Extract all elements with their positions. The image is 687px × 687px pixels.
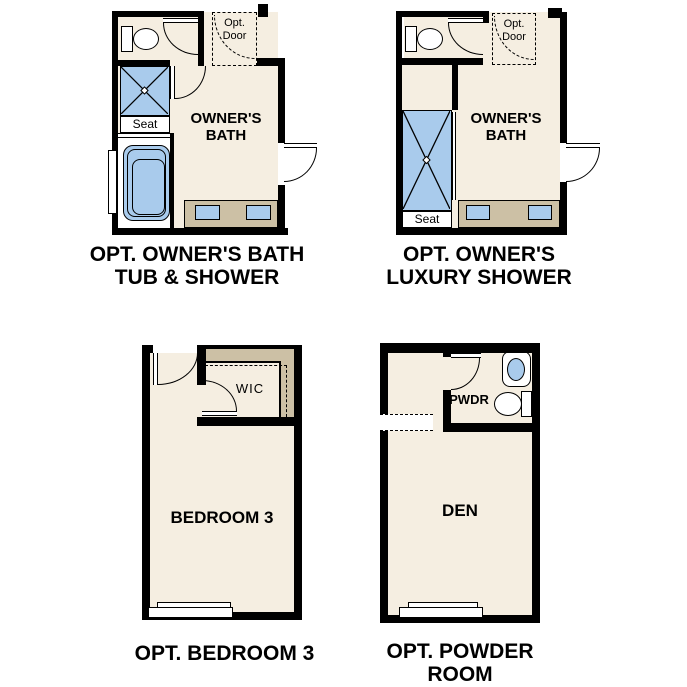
den-floor: [388, 431, 532, 615]
alcove-threshold-lines: [118, 133, 170, 138]
caption-text: OPT. BEDROOM 3: [135, 642, 315, 665]
wic-rod-dashed-line: [286, 365, 287, 417]
room-label-text: DEN: [442, 501, 478, 520]
window: [148, 607, 233, 618]
pwdr-label-text: PWDR: [449, 392, 489, 407]
bathtub-basin: [132, 159, 165, 215]
door-swing-arc: [284, 148, 317, 182]
toilet-bowl: [494, 392, 522, 416]
wall: [197, 417, 302, 426]
shower-x-lines: [121, 67, 168, 114]
door-swing-arc: [566, 148, 600, 182]
window: [108, 150, 117, 214]
caption-line2: LUXURY SHOWER: [376, 266, 582, 289]
plan-caption: OPT. OWNER'S LUXURY SHOWER: [376, 243, 582, 289]
opt-door-label-line2: Door: [212, 30, 257, 43]
wall: [142, 345, 153, 353]
caption-line1: OPT. OWNER'S: [376, 243, 582, 266]
wall: [112, 228, 288, 235]
wall: [278, 58, 285, 143]
shower-seat: Seat: [120, 116, 170, 133]
sink-basin: [246, 205, 271, 220]
wall: [483, 11, 489, 23]
wall: [398, 58, 483, 65]
wall: [112, 60, 170, 66]
opt-door-label: Opt. Door: [212, 17, 257, 43]
caption-line2: TUB & SHOWER: [64, 266, 330, 289]
wall: [443, 343, 451, 357]
toilet-tank: [521, 391, 532, 417]
room-label: BEDROOM 3: [142, 508, 302, 527]
opt-door-label-line2: Door: [492, 31, 536, 44]
wic-rod-dashed-line: [205, 365, 287, 366]
wic-shelf-right: [280, 349, 294, 417]
shower-x-lines: [403, 111, 450, 209]
opt-door-label-line1: Opt.: [212, 17, 257, 30]
caption-line2: ROOM: [357, 663, 563, 686]
caption-line1: OPT. OWNER'S BATH: [64, 243, 330, 266]
wall: [380, 431, 388, 623]
seat-label: Seat: [133, 117, 158, 131]
wall: [380, 343, 540, 353]
floorplan-options-sheet: Seat Opt. Door: [0, 0, 687, 687]
room-label-line2: BATH: [456, 127, 556, 144]
wall: [294, 345, 302, 620]
plan-caption: OPT. BEDROOM 3: [102, 642, 347, 665]
wic-label: WIC: [224, 381, 276, 396]
sink-basin: [466, 205, 490, 220]
shower-fixture: [120, 66, 170, 116]
room-label: DEN: [400, 501, 520, 520]
wall: [452, 65, 458, 110]
wall: [560, 12, 567, 143]
wall: [142, 345, 150, 620]
room-label-line1: OWNER'S: [176, 110, 276, 127]
room-label-text: BEDROOM 3: [171, 508, 274, 527]
wall: [532, 343, 540, 623]
wic-shelf-edge-line: [279, 361, 281, 417]
wall: [396, 11, 402, 235]
toilet-bowl: [133, 28, 159, 50]
wall: [396, 228, 567, 235]
room-label-line1: OWNER'S: [456, 110, 556, 127]
wic-door-leaf: [202, 411, 237, 416]
sink-basin: [195, 205, 220, 220]
opt-door-label-line1: Opt.: [492, 18, 536, 31]
plan-caption: OPT. POWDER ROOM: [357, 640, 563, 686]
window: [157, 602, 231, 608]
wall: [197, 345, 206, 385]
doorway-gap: [483, 23, 489, 65]
shower-seat: Seat: [402, 211, 452, 228]
opt-door-label: Opt. Door: [492, 18, 536, 44]
sink-bowl: [507, 358, 525, 381]
window: [408, 602, 478, 608]
wall: [258, 4, 268, 17]
wic-label-text: WIC: [236, 381, 264, 396]
wall: [443, 423, 540, 432]
wall: [398, 11, 489, 17]
toilet-bowl: [417, 28, 443, 50]
room-label: OWNER'S BATH: [456, 110, 556, 144]
shower-fixture: [402, 110, 452, 211]
window: [399, 607, 483, 618]
wall: [112, 11, 204, 17]
toilet-tank: [405, 26, 417, 52]
toilet-tank: [121, 26, 133, 52]
room-label: OWNER'S BATH: [176, 110, 276, 144]
plan-caption: OPT. OWNER'S BATH TUB & SHOWER: [64, 243, 330, 289]
seat-label: Seat: [415, 212, 440, 226]
wall: [198, 11, 204, 66]
den-opening-dashed: [380, 414, 433, 431]
caption-line1: OPT. POWDER: [357, 640, 563, 663]
room-label-line2: BATH: [176, 127, 276, 144]
wic-shelf-edge-line: [201, 361, 281, 363]
pwdr-label: PWDR: [443, 393, 495, 407]
sink-basin: [528, 205, 552, 220]
wall: [170, 133, 174, 228]
wall: [380, 343, 388, 415]
